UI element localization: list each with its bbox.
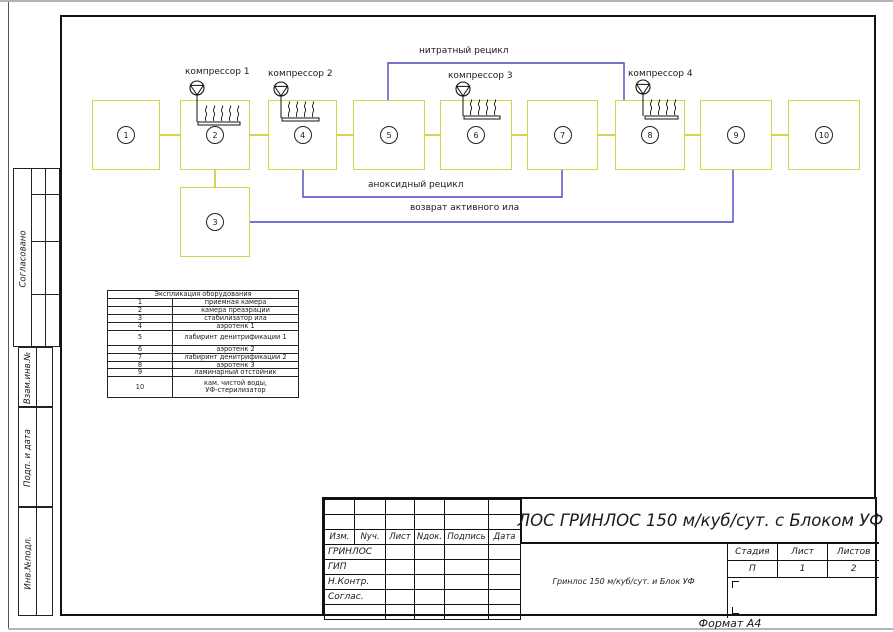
revision-row bbox=[325, 515, 521, 530]
tank-9-laminar-settler: 9 bbox=[700, 100, 772, 170]
compressor-1-label: компрессор 1 bbox=[185, 67, 250, 77]
tank-3-sludge-stabilizer: 3 bbox=[180, 187, 250, 257]
divider bbox=[31, 241, 61, 242]
table-row: 9ламинарный отстойник bbox=[108, 369, 299, 377]
tank-number-badge: 7 bbox=[554, 126, 572, 144]
compressor-2-label: компрессор 2 bbox=[268, 69, 333, 79]
tank-number-badge: 8 bbox=[641, 126, 659, 144]
sheet-left-edge bbox=[8, 2, 9, 628]
format-label: Формат А4 bbox=[680, 617, 780, 630]
table-title: Экспликация оборудования bbox=[108, 291, 299, 299]
revision-row bbox=[325, 500, 521, 515]
role-row: ГРИНЛОС bbox=[325, 545, 521, 560]
table-row: 1приемная камера bbox=[108, 299, 299, 307]
tank-number-badge: 9 bbox=[727, 126, 745, 144]
equipment-legend-table: Экспликация оборудования 1приемная камер… bbox=[107, 290, 299, 398]
compressor-4-label: компрессор 4 bbox=[628, 69, 693, 79]
table-row: 4аэротенк 1 bbox=[108, 322, 299, 330]
corner-mark-icon bbox=[732, 581, 739, 588]
pipe-connector bbox=[250, 134, 268, 136]
side-label-soglasovano: Согласовано bbox=[14, 169, 32, 348]
drawing-title: ЛОС ГРИНЛОС 150 м/куб/сут. с Блоком УФ bbox=[520, 499, 879, 544]
role-row: Соглас. bbox=[325, 590, 521, 605]
pipe-connector bbox=[772, 134, 788, 136]
tank-number-badge: 10 bbox=[815, 126, 833, 144]
stamp-section-vzam-inv: Взам.инв.№ bbox=[18, 347, 53, 407]
tank-6-aerotank-2: 6 bbox=[440, 100, 512, 170]
stamp-section-soglasovano: Согласовано bbox=[13, 168, 60, 347]
stage-sheet-table: Стадия Лист Листов П 1 2 bbox=[727, 544, 879, 618]
table-row: 3стабилизатор ила bbox=[108, 314, 299, 322]
table-row: 5лабиринт денитрификации 1 bbox=[108, 330, 299, 345]
nitrate-recycle-label: нитратный рецикл bbox=[419, 46, 509, 56]
pipe-connector bbox=[214, 170, 216, 187]
title-block: Изм. Nуч. Лист Nдок. Подпись Дата ГРИНЛО… bbox=[322, 497, 877, 616]
sludge-return-label: возврат активного ила bbox=[410, 203, 519, 213]
divider bbox=[45, 169, 46, 346]
anoxic-recycle-label: аноксидный рецикл bbox=[368, 180, 463, 190]
title-block-signature-grid: Изм. Nуч. Лист Nдок. Подпись Дата ГРИНЛО… bbox=[324, 499, 521, 620]
table-title-row: Экспликация оборудования bbox=[108, 291, 299, 299]
corner-mark-icon bbox=[732, 607, 739, 614]
stamp-section-podp-data: Подп. и дата bbox=[18, 407, 53, 507]
pipe-connector bbox=[425, 134, 440, 136]
table-row: 8аэротенк 3 bbox=[108, 361, 299, 369]
tank-number-badge: 2 bbox=[206, 126, 224, 144]
document-name: Гринлос 150 м/куб/сут. и Блок УФ bbox=[520, 544, 727, 618]
pipe-connector bbox=[512, 134, 527, 136]
side-label-podp-data: Подп. и дата bbox=[19, 408, 37, 508]
tank-5-denitrification-labyrinth-1: 5 bbox=[353, 100, 425, 170]
stamp-section-inv-podl: Инв.№подл. bbox=[18, 507, 53, 616]
pipe-connector bbox=[160, 134, 180, 136]
stage-value-row: П 1 2 bbox=[728, 561, 879, 578]
tank-number-badge: 3 bbox=[206, 213, 224, 231]
divider bbox=[31, 294, 61, 295]
role-row: ГИП bbox=[325, 560, 521, 575]
table-row: 6аэротенк 2 bbox=[108, 345, 299, 353]
compressor-3-label: компрессор 3 bbox=[448, 71, 513, 81]
tank-4-aerotank-1: 4 bbox=[268, 100, 337, 170]
sheet-top-edge bbox=[0, 0, 893, 2]
tank-number-badge: 6 bbox=[467, 126, 485, 144]
tank-number-badge: 1 bbox=[117, 126, 135, 144]
tank-number-badge: 4 bbox=[294, 126, 312, 144]
header-row: Изм. Nуч. Лист Nдок. Подпись Дата bbox=[325, 530, 521, 545]
divider bbox=[31, 194, 61, 195]
pipe-connector bbox=[685, 134, 700, 136]
side-label-vzam-inv: Взам.инв.№ bbox=[19, 348, 37, 408]
pipe-connector bbox=[598, 134, 615, 136]
table-row: 10 кам. чистой воды,УФ-стерилизатор bbox=[108, 377, 299, 398]
tank-1-receiving-chamber: 1 bbox=[92, 100, 160, 170]
tank-2-preaeration-chamber: 2 bbox=[180, 100, 250, 170]
stage-header-row: Стадия Лист Листов bbox=[728, 544, 879, 561]
company-logo-box bbox=[728, 578, 879, 617]
tank-number-badge: 5 bbox=[380, 126, 398, 144]
pipe-connector bbox=[337, 134, 353, 136]
tank-10-clean-water-uv: 10 bbox=[788, 100, 860, 170]
empty-row bbox=[325, 605, 521, 620]
tank-7-denitrification-labyrinth-2: 7 bbox=[527, 100, 598, 170]
side-label-inv-podl: Инв.№подл. bbox=[19, 508, 37, 617]
drawing-sheet: Согласовано Взам.инв.№ Подп. и дата Инв.… bbox=[0, 0, 893, 632]
table-row: 7лабиринт денитрификации 2 bbox=[108, 353, 299, 361]
table-row: 2камера преаэрации bbox=[108, 306, 299, 314]
tank-8-aerotank-3: 8 bbox=[615, 100, 685, 170]
role-row: Н.Контр. bbox=[325, 575, 521, 590]
